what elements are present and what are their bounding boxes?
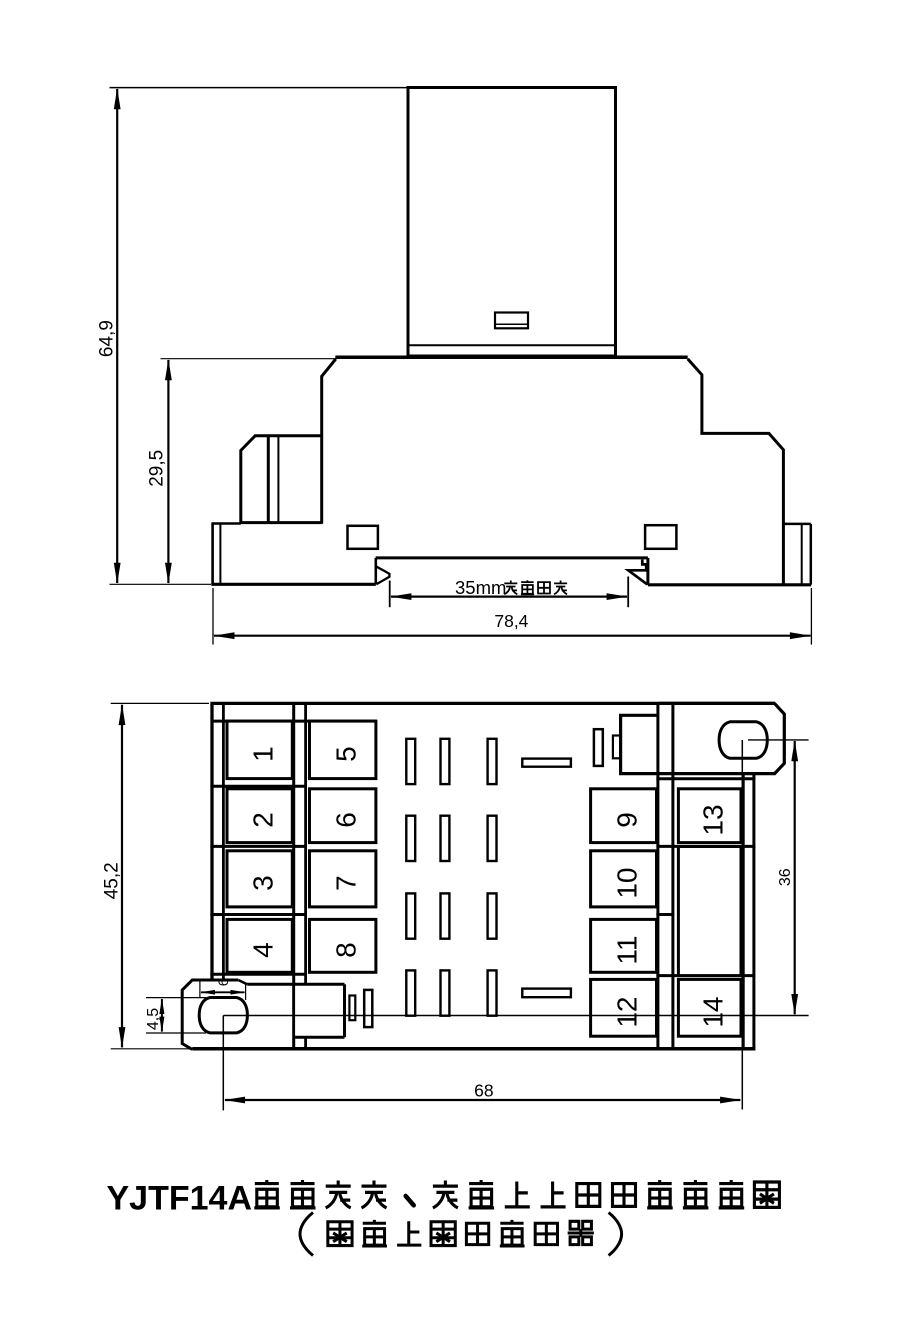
- svg-text:45,2: 45,2: [102, 862, 123, 899]
- svg-text:36: 36: [777, 868, 794, 886]
- svg-text:6: 6: [331, 812, 362, 828]
- svg-text:1: 1: [248, 746, 279, 762]
- svg-text:10: 10: [612, 868, 643, 899]
- svg-text:13: 13: [698, 804, 729, 835]
- svg-text:YJTF14A: YJTF14A: [107, 1180, 253, 1218]
- svg-text:3: 3: [248, 875, 279, 891]
- svg-text:6: 6: [215, 978, 231, 986]
- svg-text:29,5: 29,5: [147, 450, 168, 487]
- svg-text:9: 9: [612, 812, 643, 828]
- svg-text:68: 68: [474, 1081, 493, 1101]
- svg-text:12: 12: [612, 997, 643, 1028]
- svg-text:5: 5: [331, 746, 362, 762]
- svg-text:4: 4: [248, 942, 279, 958]
- svg-text:7: 7: [331, 875, 362, 891]
- svg-text:4,5: 4,5: [145, 1008, 162, 1030]
- svg-text:14: 14: [698, 997, 729, 1028]
- svg-text:8: 8: [331, 942, 362, 958]
- svg-text:2: 2: [248, 812, 279, 828]
- svg-text:78,4: 78,4: [494, 611, 528, 631]
- svg-text:64,9: 64,9: [97, 320, 118, 357]
- svg-text:11: 11: [612, 936, 643, 965]
- svg-text:35mm: 35mm: [455, 577, 506, 598]
